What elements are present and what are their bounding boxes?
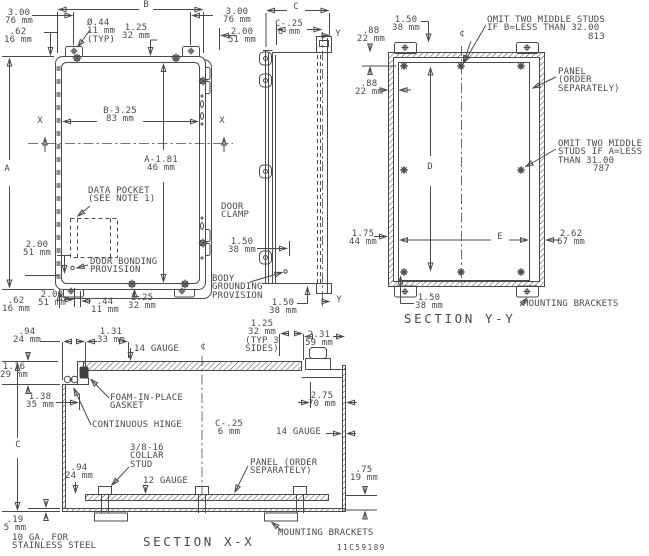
x-mark-left: X xyxy=(37,117,43,125)
dim-a-letter: A xyxy=(4,165,10,173)
dim-d-letter: D xyxy=(427,163,433,171)
note-data-pocket: DATA POCKET (SEE NOTE 1) xyxy=(88,187,155,204)
note-14-gauge-top: 14 GAUGE xyxy=(134,345,179,353)
note-body-grounding: BODY GROUNDING PROVISION xyxy=(212,275,263,300)
note-panel-xx: PANEL (ORDER SEPARATELY) xyxy=(250,459,317,476)
note-omit-a: OMIT TWO MIDDLE STUDS IF A=LESS THAN 31.… xyxy=(558,140,642,165)
dim-116-29: 1.16 29 mm xyxy=(0,363,28,380)
dim-c-top: C xyxy=(293,3,299,11)
centerline-symbol-yy: ¢ xyxy=(459,30,465,38)
dim-75-19: .75 19 mm xyxy=(350,466,378,483)
note-14-gauge-right: 14 GAUGE xyxy=(276,428,321,436)
dim-150-side-bottom: 1.50 38 mm xyxy=(269,299,297,316)
dim-19-5: .19 5 mm xyxy=(4,516,26,533)
dim-125-typ-3-sides: 1.25 32 mm (TYP 3 SIDES) xyxy=(245,320,279,354)
dim-94-xx-bottom: .94 24 mm xyxy=(65,464,93,481)
drawing-number: 11C59189 xyxy=(337,544,386,552)
dim-200-top-right: 2.00 51 mm xyxy=(228,28,256,45)
dim-125-top: 1.25 32 mm xyxy=(122,24,150,41)
dim-c-25-top: C-.25 6 mm xyxy=(275,20,303,37)
dim-b-325: B-3.25 83 mm xyxy=(103,107,137,124)
dim-a-181: A-1.81 46 mm xyxy=(144,156,178,173)
note-door-bonding: DOOR BONDING PROVISION xyxy=(90,258,157,275)
dim-150-clamp: 1.50 38 mm xyxy=(228,238,256,255)
dim-150-yy-top: 1.50 38 mm xyxy=(392,16,420,33)
note-continuous-hinge: CONTINUOUS HINGE xyxy=(92,421,182,429)
dim-94-xx-top: .94 24 mm xyxy=(13,328,41,345)
dim-175-44: 1.75 44 mm xyxy=(349,230,377,247)
note-10-ga-stainless: 10 GA. FOR STAINLESS STEEL xyxy=(12,534,96,551)
dim-b-letter: B xyxy=(143,1,149,9)
title-section-yy: SECTION Y-Y xyxy=(404,312,515,325)
dim-262-67: 2.62 67 mm xyxy=(557,230,585,247)
note-12-gauge: 12 GAUGE xyxy=(143,477,188,485)
dim-e-letter: E xyxy=(497,233,503,241)
note-mounting-brackets-xx: MOUNTING BRACKETS xyxy=(278,529,374,537)
dim-131-33: 1.31 33 mm xyxy=(97,328,125,345)
dim-c-25-xx: C-.25 6 mm xyxy=(215,420,243,437)
dim-125-bottom: 1.25 32 mm xyxy=(128,294,156,311)
dim-200-bottom: 2.00 51 mm xyxy=(38,291,66,308)
note-foam-gasket: FOAM-IN-PLACE GASKET xyxy=(110,394,183,411)
y-mark-top: Y xyxy=(335,30,341,38)
dim-62-top-left: .62 16 mm xyxy=(4,28,32,45)
x-mark-right: X xyxy=(219,117,225,125)
note-door-clamp: DOOR CLAMP xyxy=(221,203,249,220)
labels-layer: B3.00 76 mm.62 16 mmØ.44 11 mm (TYP)1.25… xyxy=(0,0,649,556)
note-omit-a-mm: 787 xyxy=(593,165,610,173)
dim-88-yy-vert: .88 22 mm xyxy=(357,27,385,44)
centerline-symbol-xx: ¢ xyxy=(200,343,206,351)
dim-300-top-left: 3.00 76 mm xyxy=(5,9,33,26)
note-panel-yy: PANEL (ORDER SEPARATELY) xyxy=(558,68,620,93)
dim-88-yy-horiz: .88 22 mm xyxy=(355,80,383,97)
title-section-xx: SECTION X-X xyxy=(143,535,254,548)
note-omit-b: OMIT TWO MIDDLE STUDS IF B=LESS THAN 32.… xyxy=(487,16,605,33)
dim-dia-44-typ: Ø.44 11 mm (TYP) xyxy=(87,19,115,44)
engineering-drawing: B3.00 76 mm.62 16 mmØ.44 11 mm (TYP)1.25… xyxy=(0,0,649,556)
dim-200-left-mid: 2.00 51 mm xyxy=(23,241,51,258)
dim-150-yy-bottom: 1.50 38 mm xyxy=(415,294,443,311)
dim-275-70: 2.75 70 mm xyxy=(308,392,336,409)
dim-231-59: 2.31 59 mm xyxy=(305,331,333,348)
dim-300-top-right: 3.00 76 mm xyxy=(223,8,251,25)
note-omit-b-mm: 813 xyxy=(588,33,605,41)
dim-62-bottom: .62 16 mm xyxy=(2,297,30,314)
dim-44-bottom: .44 11 mm xyxy=(91,298,119,315)
note-collar-stud: 3/8-16 COLLAR STUD xyxy=(130,444,164,469)
dim-138-35: 1.38 35 mm xyxy=(26,393,54,410)
dim-c-xx: C xyxy=(15,441,21,449)
note-mounting-brackets-yy: MOUNTING BRACKETS xyxy=(523,300,619,308)
y-mark-bottom: Y xyxy=(336,296,342,304)
